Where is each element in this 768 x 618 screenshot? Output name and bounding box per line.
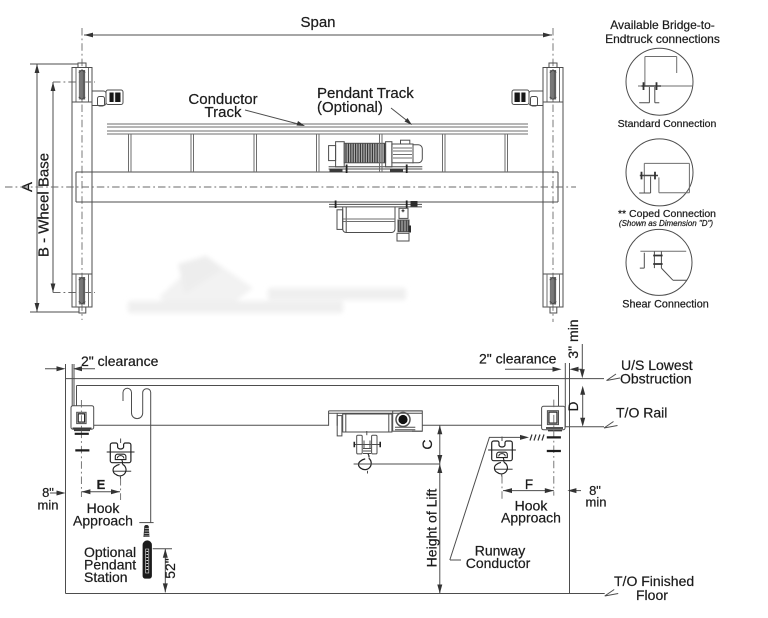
svg-text:D: D (566, 401, 581, 411)
svg-text:min: min (586, 495, 607, 510)
svg-text:T/O Rail: T/O Rail (616, 405, 667, 421)
svg-text:Conductor: Conductor (466, 555, 531, 571)
svg-text:Floor: Floor (636, 587, 668, 603)
svg-text:min: min (38, 498, 59, 513)
svg-text:2" clearance: 2" clearance (479, 351, 557, 367)
svg-text:Station: Station (84, 569, 128, 585)
svg-text:(Optional): (Optional) (317, 99, 383, 116)
svg-text:Height of Lift: Height of Lift (424, 489, 440, 568)
svg-text:Span: Span (300, 14, 335, 31)
svg-text:Approach: Approach (501, 510, 561, 526)
svg-text:Standard Connection: Standard Connection (618, 118, 717, 130)
svg-text:F: F (525, 477, 533, 492)
svg-text:Approach: Approach (73, 513, 133, 529)
svg-text:E: E (97, 477, 106, 492)
svg-text:52": 52" (162, 558, 178, 579)
svg-text:(Shown as Dimension "D"): (Shown as Dimension "D") (619, 219, 713, 228)
svg-text:Endtruck connections: Endtruck connections (605, 32, 720, 46)
svg-text:3" min: 3" min (565, 319, 581, 358)
svg-text:Obstruction: Obstruction (620, 371, 692, 387)
svg-text:2" clearance: 2" clearance (81, 353, 159, 369)
svg-text:B - Wheel Base: B - Wheel Base (36, 153, 53, 257)
svg-text:Available Bridge-to-: Available Bridge-to- (610, 18, 715, 32)
svg-text:C: C (419, 439, 435, 449)
svg-text:Track: Track (205, 104, 242, 121)
svg-text:Shear Connection: Shear Connection (622, 299, 708, 311)
